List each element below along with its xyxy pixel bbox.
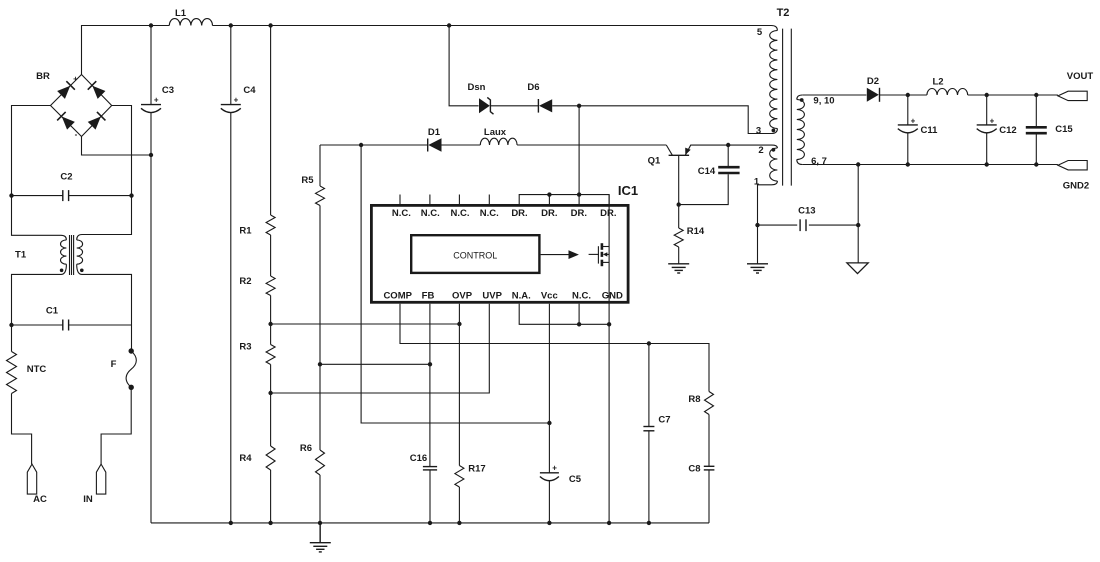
- svg-text:R4: R4: [239, 453, 252, 464]
- svg-text:C5: C5: [569, 474, 582, 485]
- svg-text:Vcc: Vcc: [541, 291, 558, 302]
- svg-text:+: +: [234, 95, 239, 104]
- svg-text:GND: GND: [602, 291, 623, 302]
- svg-text:N.A.: N.A.: [512, 291, 531, 302]
- svg-text:C12: C12: [999, 125, 1016, 136]
- svg-text:L2: L2: [932, 77, 943, 88]
- svg-text:+: +: [990, 117, 995, 126]
- svg-text:3: 3: [756, 126, 761, 137]
- svg-text:+: +: [73, 75, 78, 84]
- svg-text:N.C.: N.C.: [451, 208, 470, 219]
- svg-text:C16: C16: [410, 453, 427, 464]
- svg-text:Laux: Laux: [484, 127, 507, 138]
- svg-text:CONTROL: CONTROL: [453, 251, 497, 261]
- svg-text:OVP: OVP: [452, 291, 473, 302]
- svg-text:N.C.: N.C.: [392, 208, 411, 219]
- svg-text:R1: R1: [239, 226, 252, 237]
- svg-text:C3: C3: [162, 85, 174, 96]
- svg-text:+: +: [154, 95, 159, 104]
- svg-text:6, 7: 6, 7: [811, 156, 827, 167]
- svg-text:T1: T1: [15, 250, 27, 261]
- svg-text:5: 5: [757, 27, 763, 38]
- svg-text:COMP: COMP: [383, 291, 412, 302]
- svg-text:NTC: NTC: [27, 364, 47, 375]
- svg-text:D2: D2: [867, 76, 879, 87]
- svg-text:T2: T2: [777, 7, 790, 19]
- svg-text:R14: R14: [687, 226, 705, 237]
- svg-text:R3: R3: [239, 342, 251, 353]
- svg-text:R5: R5: [301, 175, 314, 186]
- svg-text:FB: FB: [422, 291, 435, 302]
- svg-text:DR.: DR.: [600, 208, 616, 219]
- svg-text:+: +: [911, 117, 916, 126]
- svg-text:N.C.: N.C.: [421, 208, 440, 219]
- svg-text:C2: C2: [60, 172, 72, 183]
- svg-text:IN: IN: [83, 494, 93, 505]
- svg-text:IC1: IC1: [618, 183, 638, 198]
- svg-text:9, 10: 9, 10: [813, 96, 834, 107]
- svg-text:R17: R17: [468, 464, 485, 475]
- svg-text:C14: C14: [698, 166, 716, 177]
- svg-text:N.C.: N.C.: [572, 291, 591, 302]
- svg-text:2: 2: [758, 145, 763, 156]
- svg-text:DR.: DR.: [511, 208, 527, 219]
- svg-text:UVP: UVP: [482, 291, 502, 302]
- svg-text:L1: L1: [175, 8, 187, 19]
- svg-text:R6: R6: [300, 443, 312, 454]
- svg-text:-: -: [75, 130, 78, 139]
- svg-text:D1: D1: [428, 127, 441, 138]
- svg-text:DR.: DR.: [541, 208, 557, 219]
- svg-text:C13: C13: [798, 206, 815, 217]
- svg-text:GND2: GND2: [1063, 181, 1089, 192]
- svg-text:C7: C7: [658, 415, 670, 426]
- svg-text:C11: C11: [921, 125, 939, 136]
- svg-text:C4: C4: [243, 85, 256, 96]
- svg-text:AC: AC: [33, 494, 47, 505]
- svg-text:Dsn: Dsn: [468, 82, 486, 93]
- svg-text:BR: BR: [36, 71, 50, 82]
- svg-text:D6: D6: [527, 82, 539, 93]
- svg-text:+: +: [552, 463, 557, 472]
- svg-text:C8: C8: [688, 464, 700, 475]
- svg-text:VOUT: VOUT: [1067, 71, 1094, 82]
- svg-text:R8: R8: [688, 394, 700, 405]
- svg-text:Q1: Q1: [648, 156, 661, 167]
- svg-text:1: 1: [754, 177, 760, 188]
- svg-text:F: F: [111, 359, 117, 370]
- svg-text:R2: R2: [239, 276, 251, 287]
- svg-text:DR.: DR.: [571, 208, 587, 219]
- svg-text:N.C.: N.C.: [480, 208, 499, 219]
- svg-text:C1: C1: [46, 306, 59, 317]
- svg-text:C15: C15: [1055, 124, 1073, 135]
